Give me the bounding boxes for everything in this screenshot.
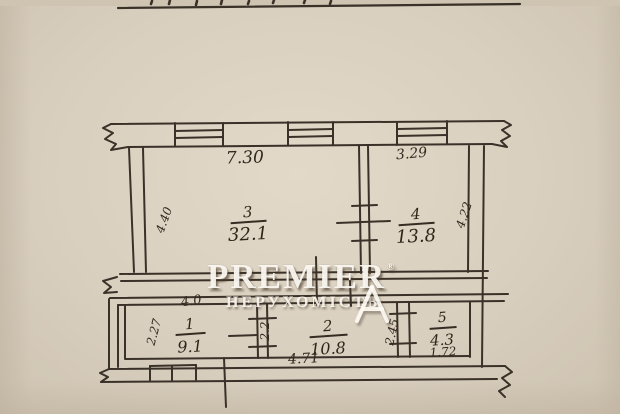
dim-room4-width: 3.29 [395,145,427,164]
room3-number: 3 [230,203,267,224]
left-outer-wall [109,299,118,369]
scanned-floor-plan: 7.30 3.29 4.40 4.22 4.0 2.27 2.2 2.45 4.… [0,0,620,414]
room4-label: 4 13.8 [392,204,440,246]
room5-number: 5 [428,309,456,330]
middle-walls [103,257,508,306]
room1-label: 1 9.1 [168,314,212,356]
room3-label: 3 32.1 [222,202,274,244]
partition-room3-room4 [337,146,390,273]
dim-room1-top: 4.0 [180,293,203,311]
room4-area: 13.8 [392,226,441,247]
room1-number: 1 [175,315,206,336]
bottom-outer-wall [100,365,512,397]
room2-label: 2 10.8 [304,316,352,358]
room1-area: 9.1 [168,336,213,357]
dim-partition-1-2: 2.2 [258,313,272,349]
room4-number: 4 [398,205,435,226]
room2-number: 2 [309,317,348,339]
dim-room3-width: 7.30 [226,147,265,168]
room2-area: 10.8 [304,338,353,359]
room3-area: 32.1 [222,224,275,246]
document-cut-edge [118,0,520,8]
room3-left-wall [129,148,146,272]
room5-label: 5 4.3 [420,307,464,350]
room5-area: 4.3 [420,330,465,351]
top-wall-windows [103,121,511,150]
